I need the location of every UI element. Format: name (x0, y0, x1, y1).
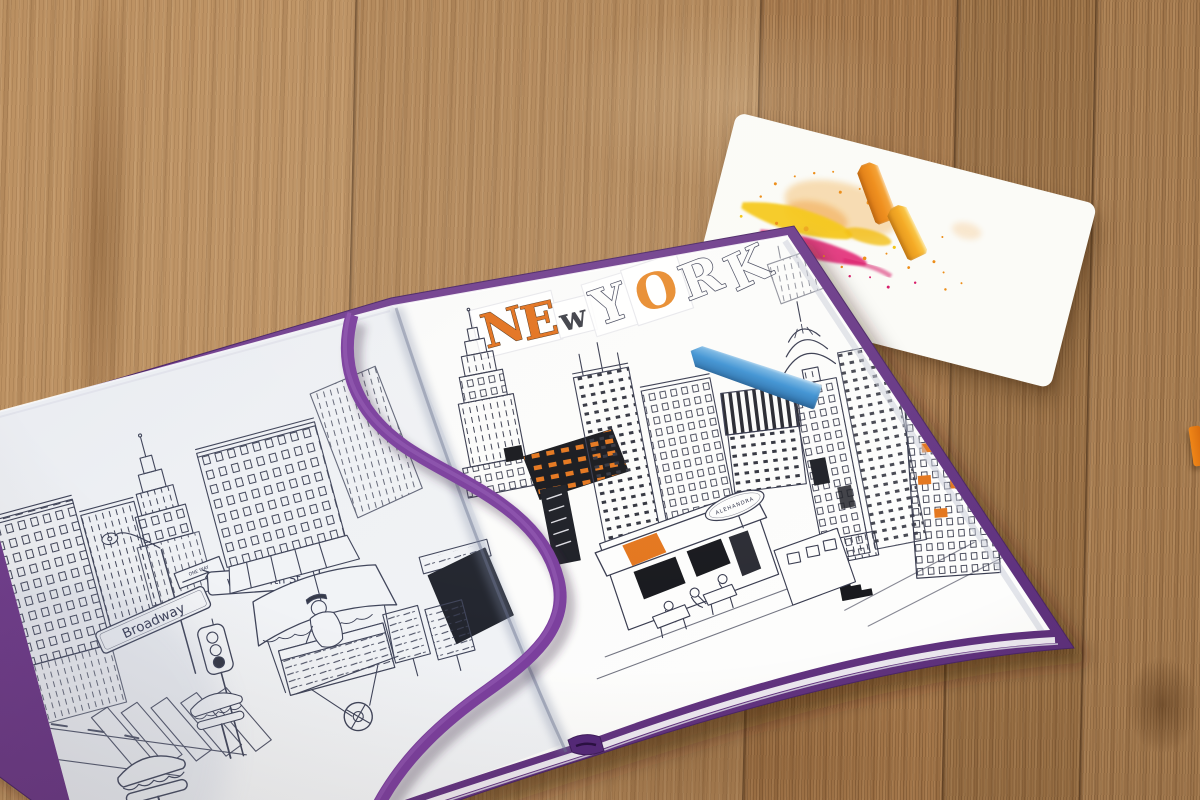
elastic-notch (568, 735, 604, 755)
photo-stage: ONE WAY Broadway West 34th St (0, 0, 1200, 800)
sketchbook: ONE WAY Broadway West 34th St (0, 0, 1200, 800)
